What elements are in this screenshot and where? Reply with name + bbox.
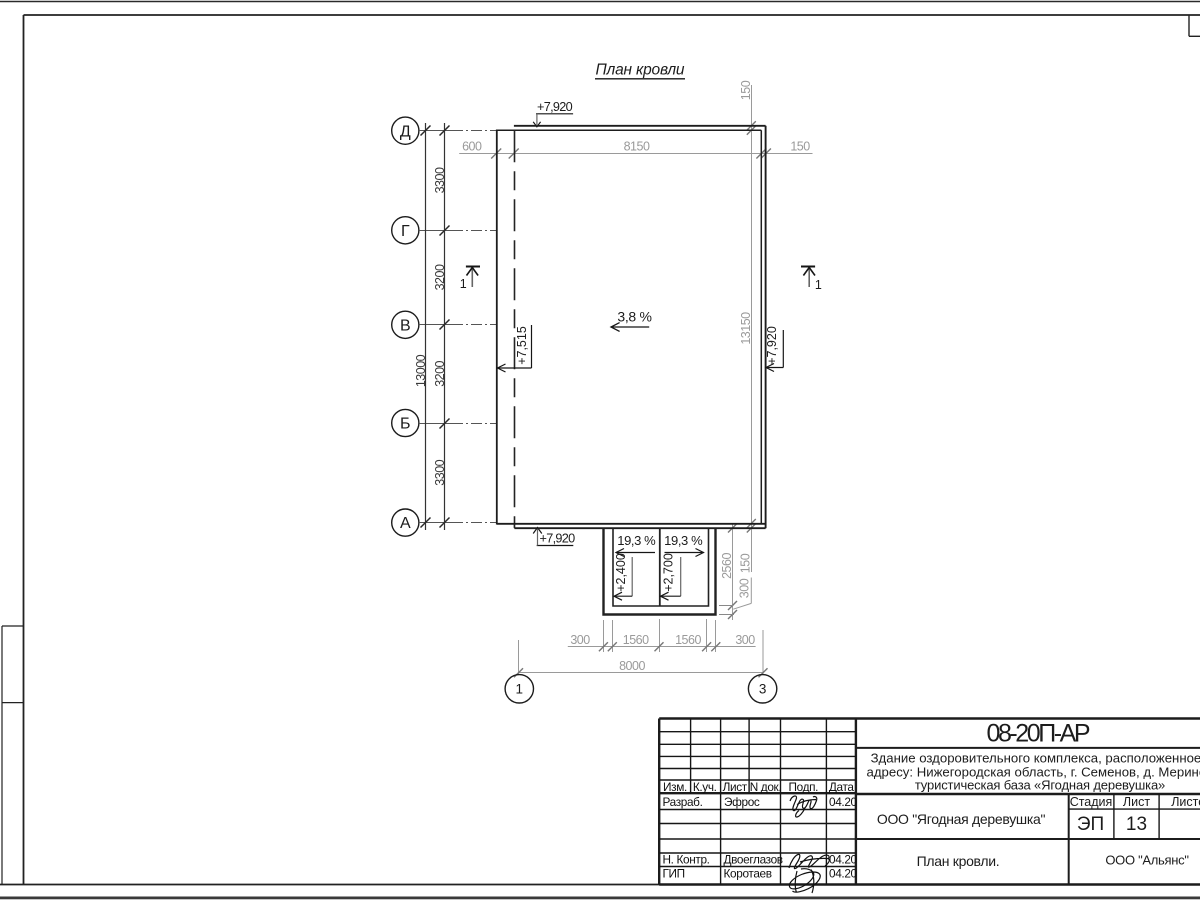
- svg-text:Изм.: Изм.: [663, 780, 687, 794]
- svg-text:300: 300: [570, 633, 590, 647]
- svg-text:К.уч.: К.уч.: [693, 780, 717, 794]
- svg-text:Б: Б: [400, 416, 411, 433]
- svg-text:13150: 13150: [739, 312, 753, 345]
- svg-text:04.20: 04.20: [829, 795, 858, 809]
- svg-text:1: 1: [815, 278, 822, 292]
- svg-text:+7,920: +7,920: [537, 100, 573, 114]
- svg-text:150: 150: [739, 553, 753, 573]
- svg-text:2560: 2560: [720, 553, 734, 579]
- svg-text:Подп.: Подп.: [789, 780, 819, 794]
- svg-text:300: 300: [738, 578, 752, 598]
- svg-text:600: 600: [462, 139, 482, 153]
- svg-text:Листов: Листов: [1171, 795, 1200, 809]
- svg-text:1560: 1560: [675, 633, 701, 647]
- svg-text:+7,515: +7,515: [515, 326, 529, 365]
- svg-text:Н. Контр.: Н. Контр.: [663, 853, 710, 867]
- svg-text:04.20: 04.20: [829, 867, 858, 881]
- svg-text:+7,920: +7,920: [540, 532, 576, 546]
- svg-text:ООО "Альянс": ООО "Альянс": [1105, 853, 1189, 868]
- svg-text:3200: 3200: [433, 264, 447, 290]
- svg-text:+2,700: +2,700: [662, 553, 676, 592]
- svg-text:А: А: [400, 515, 411, 532]
- svg-text:13: 13: [1126, 814, 1147, 835]
- svg-text:Г: Г: [401, 223, 410, 240]
- svg-text:Д: Д: [400, 123, 411, 140]
- svg-text:1: 1: [516, 682, 524, 697]
- svg-text:8150: 8150: [624, 139, 650, 153]
- svg-text:04.20: 04.20: [829, 853, 858, 867]
- svg-text:150: 150: [739, 80, 753, 100]
- svg-text:В: В: [400, 317, 411, 334]
- svg-text:Дата: Дата: [829, 780, 855, 794]
- svg-text:Коротаев: Коротаев: [724, 867, 772, 881]
- svg-text:300: 300: [735, 633, 755, 647]
- svg-text:ООО "Ягодная деревушка": ООО "Ягодная деревушка": [877, 811, 1046, 827]
- svg-text:План кровли.: План кровли.: [917, 853, 1000, 869]
- svg-text:3200: 3200: [433, 360, 447, 386]
- svg-text:Двоеглазов: Двоеглазов: [724, 853, 783, 867]
- svg-text:Лист: Лист: [1123, 795, 1150, 809]
- svg-text:1560: 1560: [623, 633, 649, 647]
- svg-text:Лист: Лист: [723, 780, 748, 794]
- svg-text:+7,920: +7,920: [765, 326, 779, 365]
- svg-text:13000: 13000: [414, 354, 428, 387]
- svg-text:1: 1: [460, 277, 467, 291]
- svg-text:туристическая база «Ягодная де: туристическая база «Ягодная деревушка»: [915, 778, 1165, 793]
- svg-text:8000: 8000: [619, 659, 645, 673]
- svg-text:3,8 %: 3,8 %: [617, 308, 651, 324]
- svg-text:Здание оздоровительного компле: Здание оздоровительного комплекса, распо…: [871, 751, 1200, 766]
- svg-text:+2,400: +2,400: [614, 553, 628, 592]
- svg-text:08-20П-АР: 08-20П-АР: [987, 720, 1091, 748]
- svg-text:Разраб.: Разраб.: [663, 795, 703, 809]
- svg-text:Эфрос: Эфрос: [724, 795, 760, 809]
- svg-text:ГИП: ГИП: [663, 867, 685, 881]
- svg-text:3300: 3300: [433, 459, 447, 485]
- svg-text:3: 3: [759, 682, 767, 697]
- svg-text:План кровли: План кровли: [596, 62, 685, 79]
- svg-text:Стадия: Стадия: [1070, 795, 1113, 809]
- svg-text:3300: 3300: [433, 167, 447, 193]
- svg-text:ЭП: ЭП: [1077, 814, 1104, 835]
- svg-text:19,3 %: 19,3 %: [617, 533, 656, 548]
- svg-text:19,3 %: 19,3 %: [664, 533, 703, 548]
- svg-text:150: 150: [790, 139, 810, 153]
- svg-text:N док.: N док.: [750, 780, 782, 794]
